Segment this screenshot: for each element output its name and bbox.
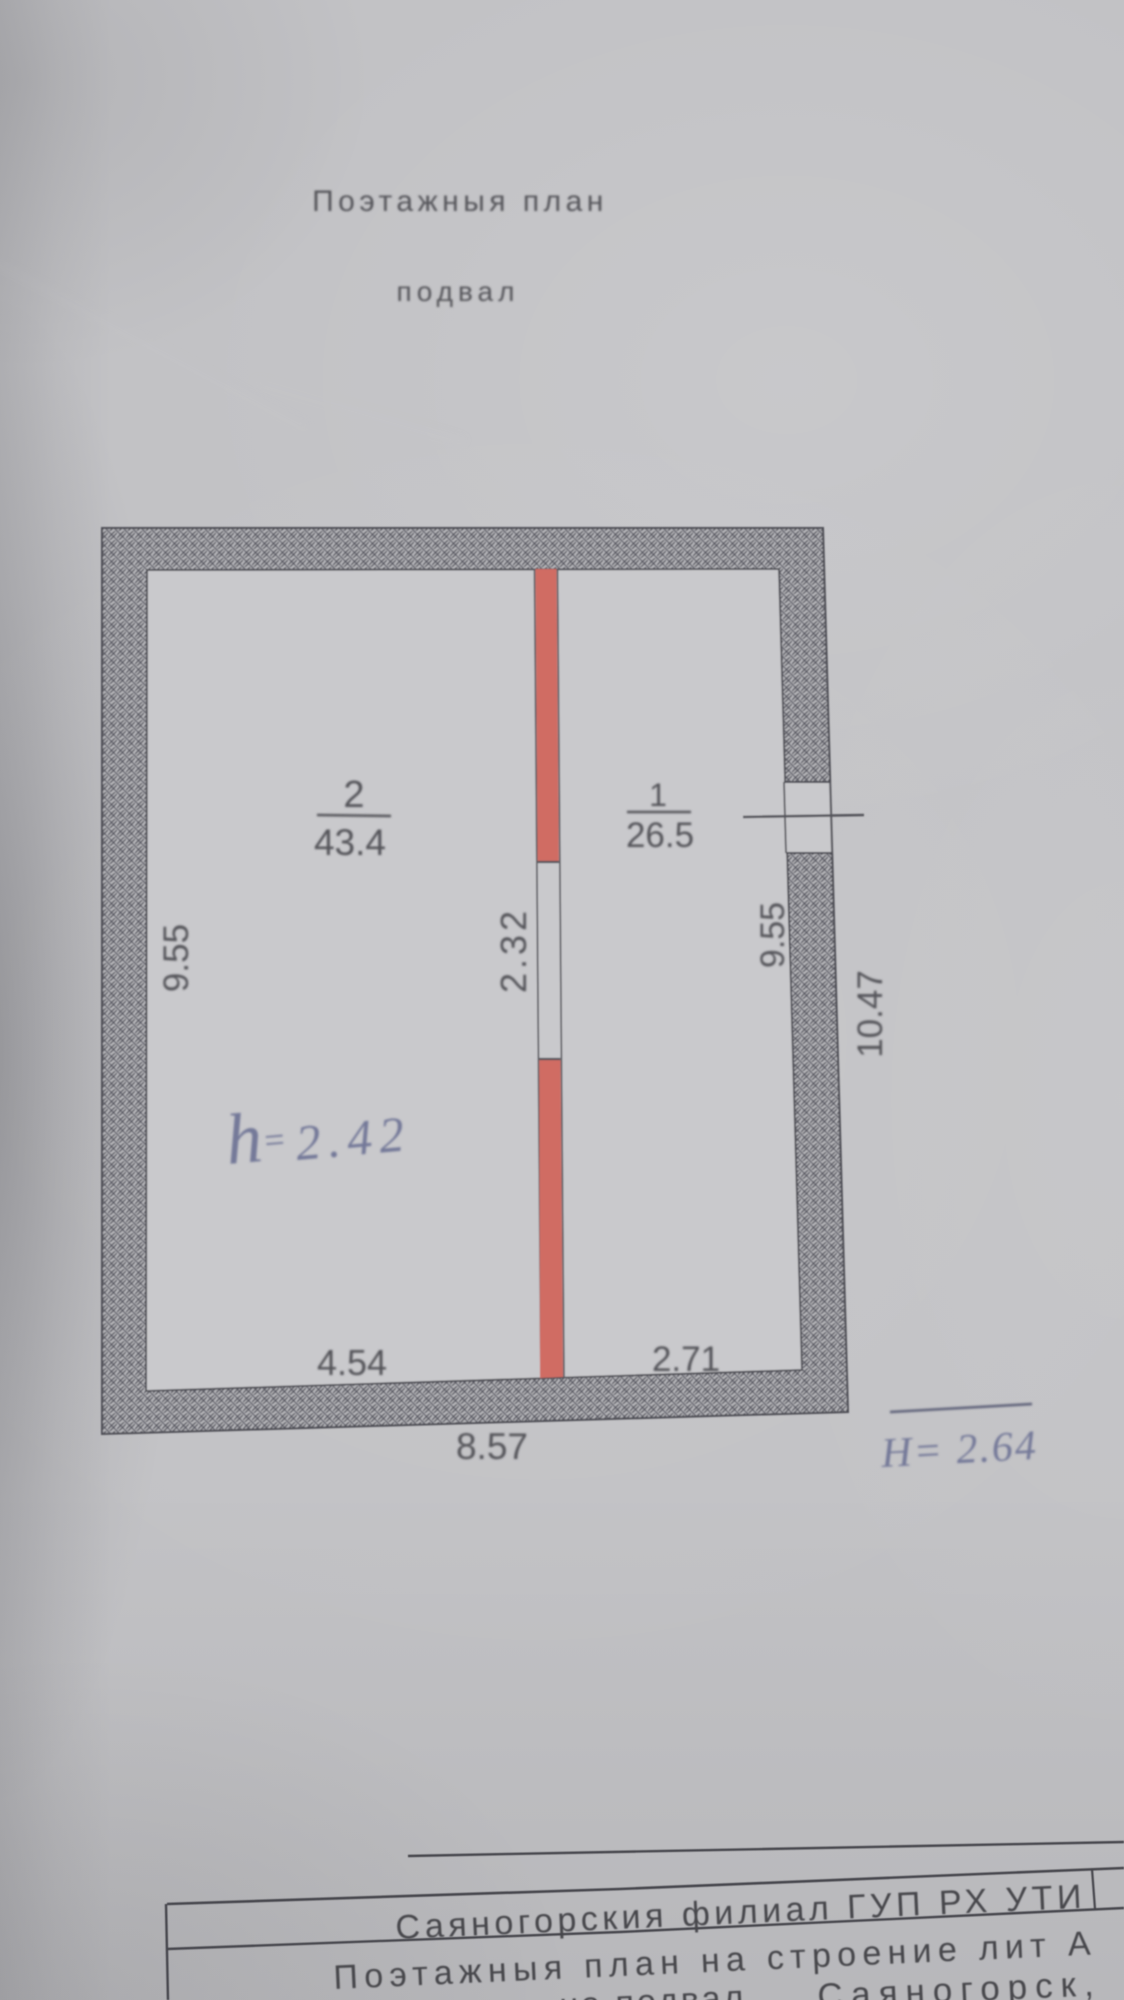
svg-text:Поэтажныя план: Поэтажныя план [312, 185, 608, 218]
svg-text:2.32: 2.32 [493, 907, 534, 993]
svg-text:H= 2.64: H= 2.64 [879, 1423, 1039, 1477]
svg-text:1: 1 [649, 777, 667, 813]
svg-text:9.55: 9.55 [157, 924, 196, 992]
svg-text:4.54: 4.54 [317, 1342, 387, 1383]
svg-text:2.71: 2.71 [652, 1340, 720, 1379]
svg-text:2: 2 [343, 774, 364, 816]
svg-text:43.4: 43.4 [314, 822, 386, 863]
svg-text:9.55: 9.55 [754, 902, 792, 968]
svg-text:подвал: подвал [397, 276, 520, 307]
svg-text:26.5: 26.5 [626, 816, 694, 855]
svg-text:10.47: 10.47 [851, 970, 890, 1058]
svg-text:8.57: 8.57 [456, 1426, 528, 1467]
